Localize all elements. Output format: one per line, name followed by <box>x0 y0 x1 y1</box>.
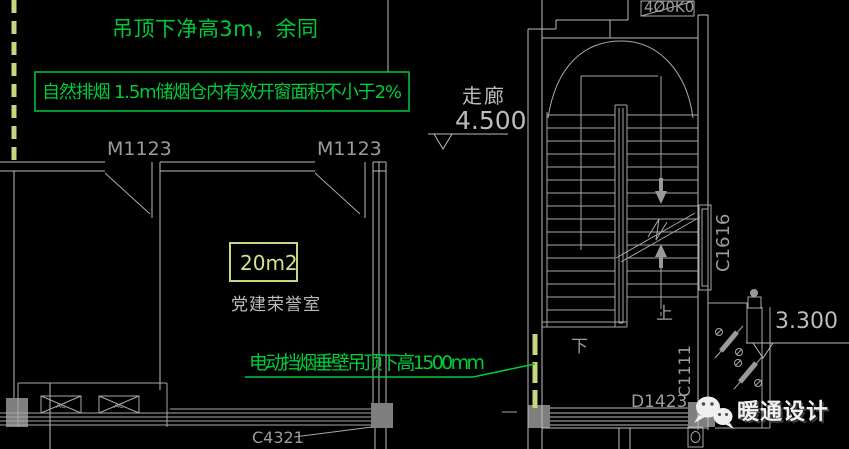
drawing-canvas: AC AC <box>0 0 849 449</box>
column <box>528 405 550 428</box>
arrow-down-icon <box>655 191 667 204</box>
ceiling-height-note: 吊顶下净高3m，余同 <box>112 17 318 41</box>
top-partial-tag: 4Ø0K0 <box>641 0 694 16</box>
damper-symbol-upper <box>715 326 743 358</box>
stair-up-label: 上 <box>656 304 673 324</box>
cad-floor-plan: AC AC <box>0 0 849 449</box>
window-inner <box>702 209 708 286</box>
floor-drain-box <box>688 427 703 447</box>
damper-actuator-dot <box>750 289 758 297</box>
door-tag-left: M1123 <box>107 138 172 160</box>
vent-label-right: AC <box>114 402 124 410</box>
right-elevation-marker <box>746 343 849 358</box>
stair-door-tag: D1423 <box>631 392 687 412</box>
stair-rails <box>542 76 658 327</box>
room-name: 党建荣誉室 <box>231 295 321 315</box>
stair-direction-arrows <box>655 76 667 320</box>
room-area-value: 20m2 <box>240 251 298 275</box>
smoke-barrier-note: 电动挡烟垂壁吊顶下高1500mm <box>249 352 485 374</box>
natural-smoke-note: 自然排烟 1.5m储烟仓内有效开窗面积不小于2% <box>42 82 402 103</box>
damper-symbol-lower <box>734 357 762 389</box>
bottom-window-band <box>0 383 517 427</box>
corridor-elevation-value: 4.500 <box>455 106 527 135</box>
right-window-tag: C1111 <box>675 345 694 397</box>
corridor-elevation-marker <box>428 134 508 149</box>
right-elevation-value: 3.300 <box>775 309 838 334</box>
column <box>371 403 393 428</box>
door-leaves <box>105 173 360 214</box>
arrow-up-icon <box>655 244 667 257</box>
corridor-label: 走廊 <box>462 84 506 108</box>
room-walls <box>0 0 388 449</box>
vent-label-left: AC <box>56 402 66 410</box>
watermark-text: 暖通设计 <box>737 400 829 425</box>
stair-window-frame <box>699 205 711 290</box>
window-tag-leader <box>294 427 372 437</box>
top-partial-tag-text: 4Ø0K0 <box>644 0 694 16</box>
stair-down-label: 下 <box>571 337 588 357</box>
stair-window-tag: C1616 <box>713 214 734 272</box>
damper-box <box>748 297 761 308</box>
stair-dome-arc <box>548 41 693 118</box>
door-tag-right: M1123 <box>317 138 382 160</box>
window-outer <box>699 205 711 290</box>
window-tag-bottom: C4321 <box>252 428 304 447</box>
stair-treads-right <box>627 115 698 297</box>
